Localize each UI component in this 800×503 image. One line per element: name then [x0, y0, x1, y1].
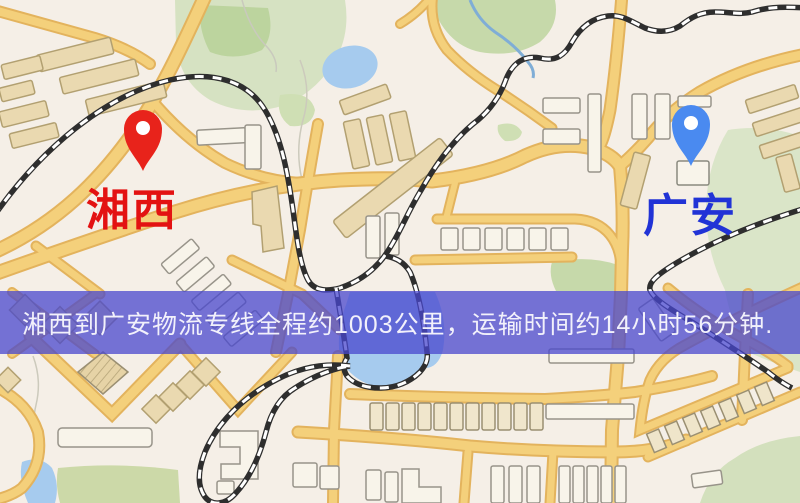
origin-pin-hole: [136, 121, 150, 135]
route-info-text: 湘西到广安物流专线全程约1003公里，运输时间约14小时56分钟.: [0, 305, 773, 341]
buildings-row-below-banner: [370, 403, 543, 430]
map-graphic: [0, 0, 800, 503]
map-canvas[interactable]: 湘西 广安 湘西到广安物流专线全程约1003公里，运输时间约14小时56分钟.: [0, 0, 800, 503]
route-info-banner: 湘西到广安物流专线全程约1003公里，运输时间约14小时56分钟.: [0, 291, 800, 354]
destination-pin-hole: [684, 116, 698, 130]
